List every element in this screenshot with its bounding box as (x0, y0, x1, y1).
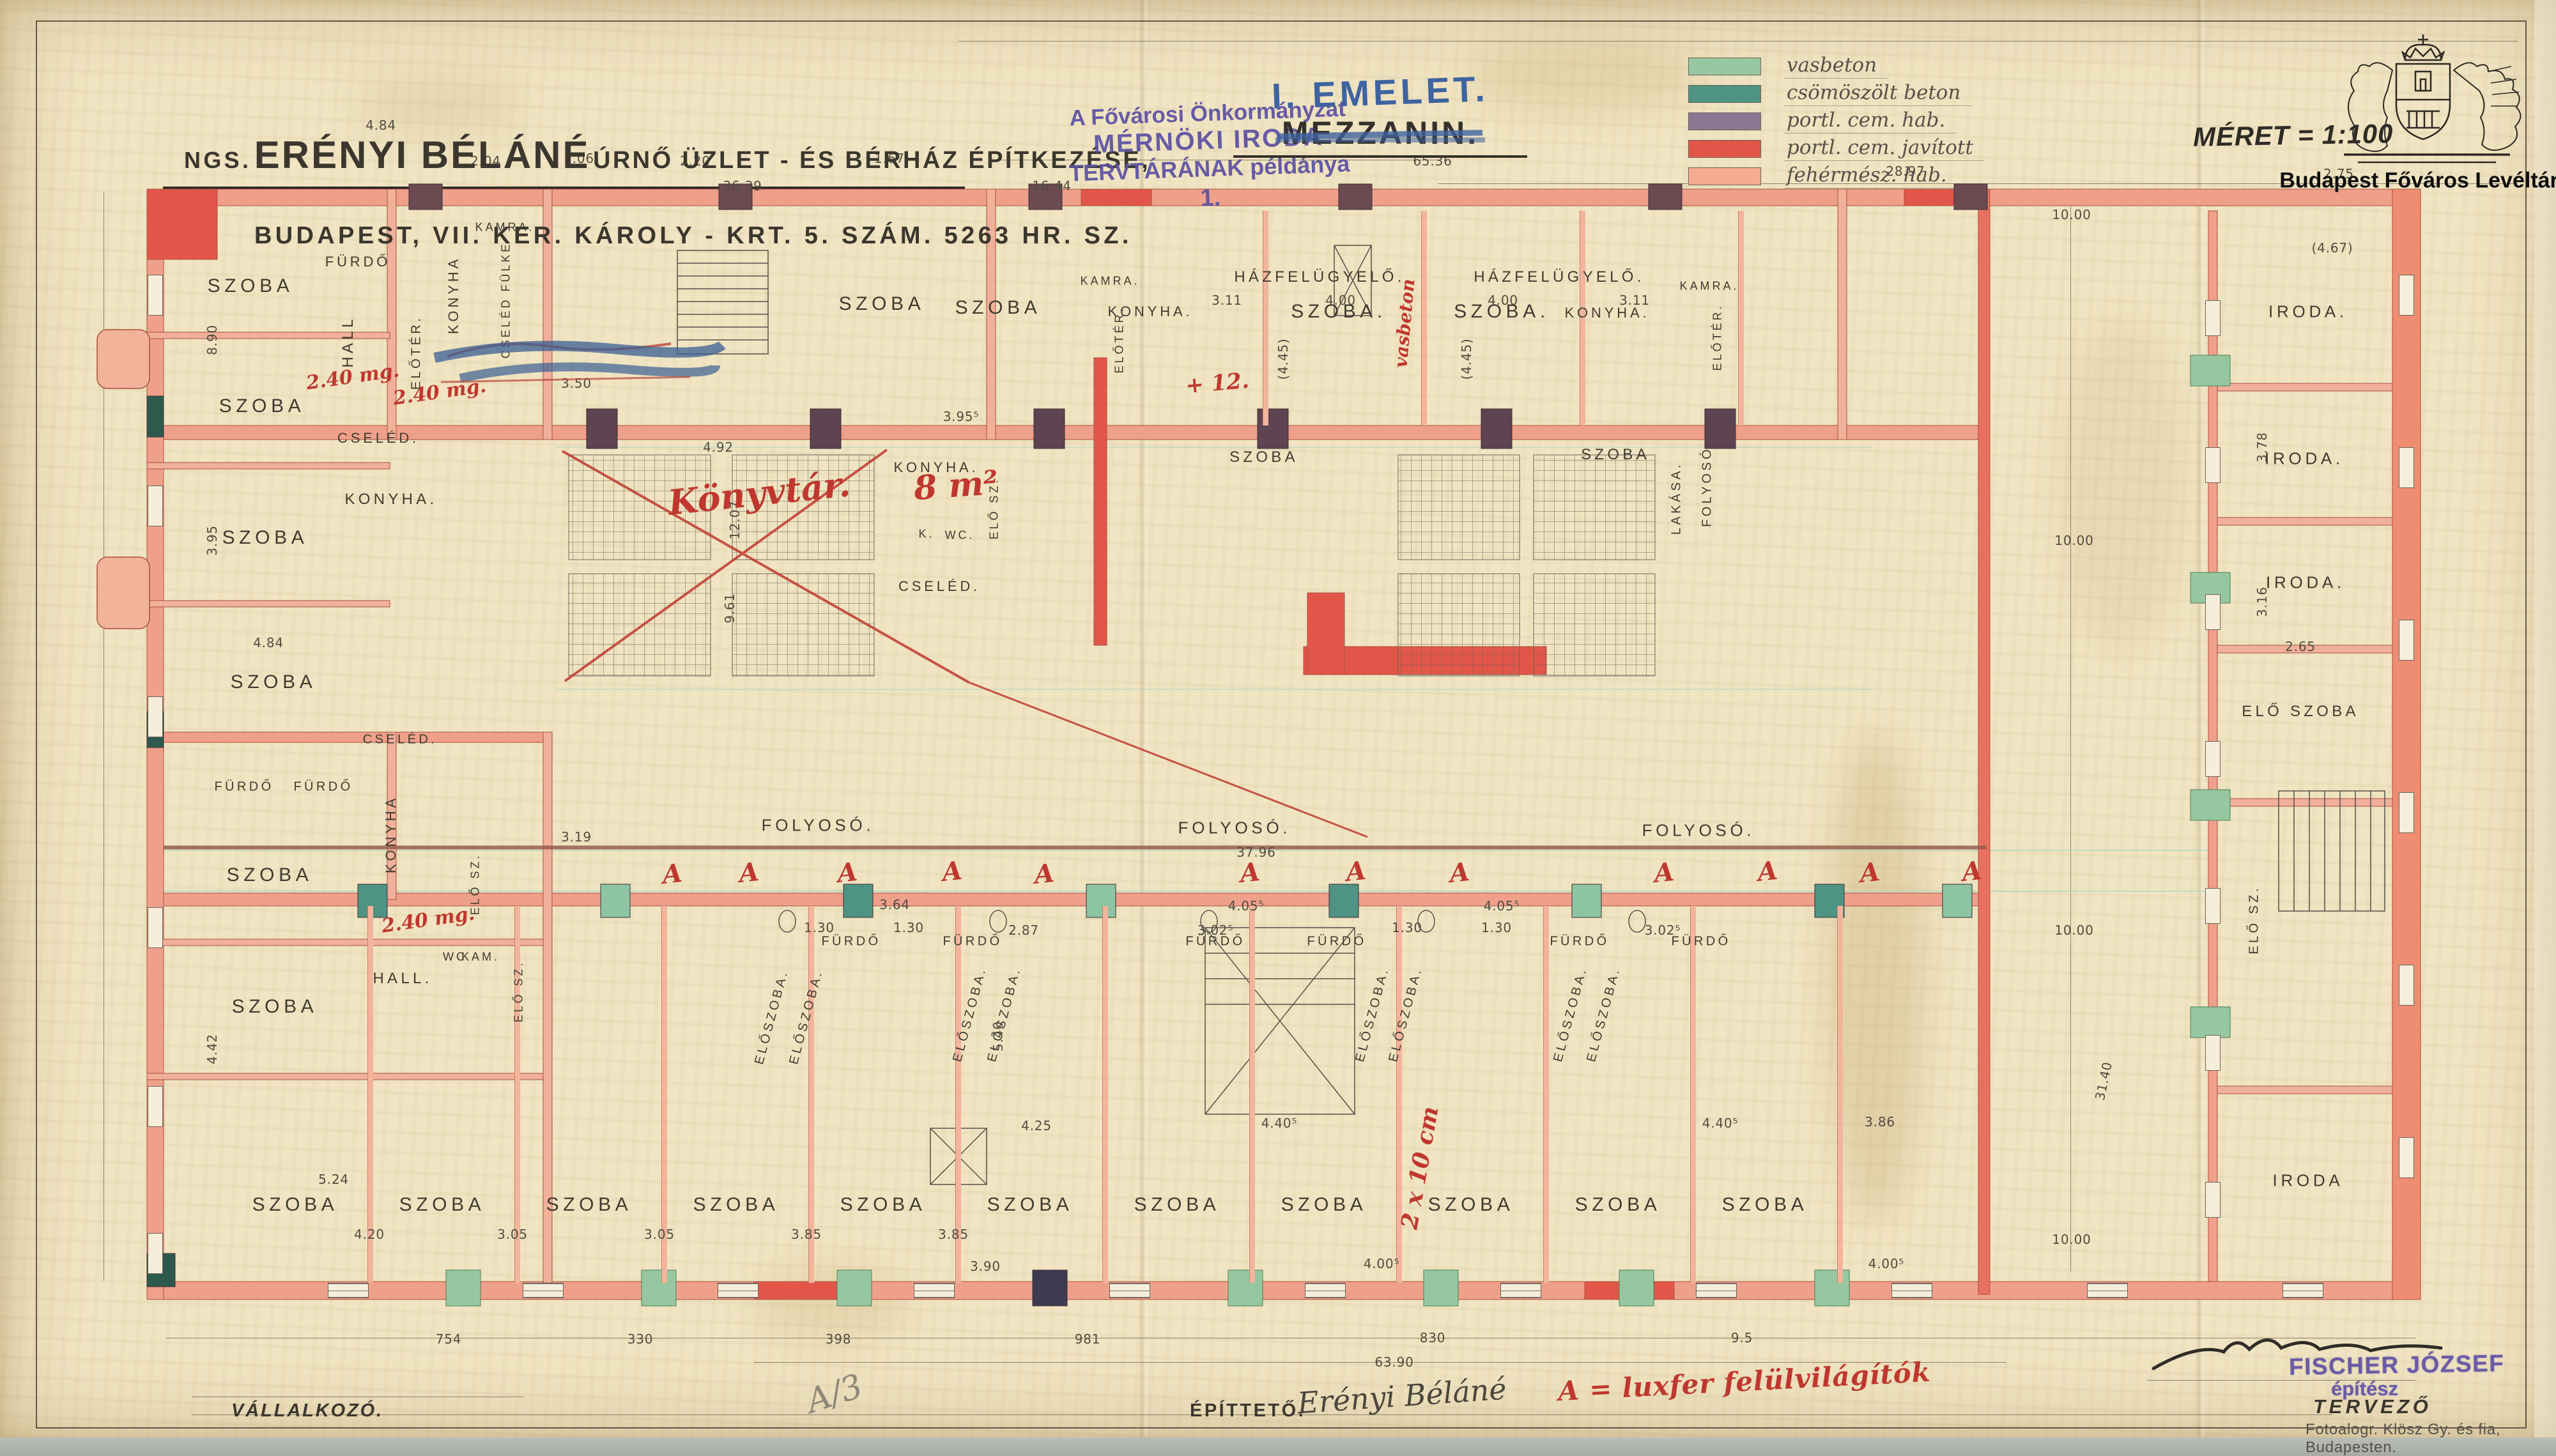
title-address: BUDAPEST, VII. KER. KÁROLY - KRT. 5. SZÁ… (254, 222, 1132, 250)
floor-crossed-label: MEZZANIN. (1282, 114, 1479, 151)
room-label: SZOBA (399, 1194, 486, 1216)
window-mark (2205, 594, 2221, 630)
dimension-label: 3.86 (1865, 1114, 1895, 1130)
crossed-out-handwriting (422, 307, 741, 409)
window-mark (2399, 792, 2414, 833)
room-divider-wall (1249, 906, 1255, 1283)
dimension-label: 3.90 (970, 1259, 1001, 1274)
skylight-a-mark: A (1652, 857, 1675, 889)
room-label: KAM. (461, 951, 500, 964)
dimension-label: 10.00 (2054, 533, 2093, 548)
dimension-label: 4.05⁵ (1484, 898, 1520, 914)
window-mark (1891, 1283, 1932, 1298)
stairs (677, 245, 2385, 1184)
window-mark (328, 1283, 369, 1298)
room-label: ELŐTÉR. (1711, 304, 1725, 371)
room-label: SZOBA (252, 1194, 339, 1216)
contractor-label: VÁLLALKOZÓ. (231, 1400, 383, 1422)
room-label: CSELÉD. (337, 430, 419, 447)
dimension-label: 3.95⁵ (943, 409, 980, 424)
window-mark (2399, 620, 2414, 661)
legend-swatch (1688, 167, 1761, 185)
window-mark (914, 1283, 955, 1298)
window-mark (1696, 1283, 1737, 1298)
room-label: SZOBA (227, 864, 313, 886)
window-mark (148, 907, 163, 948)
dimension-label: 4.40⁵ (1702, 1115, 1739, 1131)
dimension-label: 398 (826, 1331, 852, 1347)
dimension-label: 4.84 (253, 635, 284, 650)
dimension-label: 981 (1075, 1331, 1101, 1347)
materials-legend: vasbetoncsömöszölt betonportl. cem. hab.… (1688, 52, 1985, 190)
room-label: SZOBA (546, 1194, 633, 1216)
dimension-label: 10.00 (2052, 1232, 2091, 1247)
room-label: KAMRA. (1680, 280, 1739, 293)
room-divider-wall (1837, 906, 1843, 1283)
dimension-label: 8.90 (204, 325, 220, 355)
dimension-label: 3.05 (497, 1227, 528, 1242)
room-divider-wall (1263, 211, 1268, 425)
dimension-label: (4.67) (2312, 240, 2353, 256)
room-divider-wall (1690, 906, 1696, 1283)
window-mark (1109, 1283, 1150, 1298)
window-mark (2205, 1035, 2221, 1071)
dimension-label: 1.30 (1481, 920, 1512, 935)
legend-row: fehérmész. hab. (1688, 162, 1985, 190)
room-label: KAMRA. (1081, 275, 1140, 288)
room-label: SZOBA (839, 293, 925, 315)
architect-stamp-name: FISCHER JÓZSEF (2289, 1350, 2505, 1381)
floor-title-underline (1233, 155, 1527, 158)
dimension-label: 4.00⁵ (1868, 1256, 1905, 1271)
dimension-label: 830 (1420, 1330, 1446, 1345)
room-label: CSELÉD. (898, 578, 980, 595)
window-mark (148, 696, 163, 737)
archive-name-overlay: Budapest Főváros Levéltára (2279, 169, 2556, 194)
dimension-label: 2.87 (1008, 923, 1039, 938)
room-label: SZOBA (222, 527, 309, 549)
bay-windows (97, 330, 150, 629)
dimension-label: 10.00 (2054, 923, 2093, 938)
room-label: SZOBA (987, 1194, 1074, 1216)
legend-row: portl. cem. hab. (1688, 107, 1985, 135)
skylight-a-mark: A (1858, 857, 1881, 889)
legend-swatch (1688, 57, 1761, 75)
room-label: LAKÁSA. (1670, 462, 1684, 535)
window-mark (718, 1283, 758, 1298)
room-label: IRODA. (2265, 449, 2344, 469)
window-mark (2205, 888, 2221, 924)
dimension-label: 3.19 (561, 829, 592, 845)
legend-row: vasbeton (1688, 52, 1985, 80)
dimension-label: 3.11 (1212, 293, 1242, 308)
window-mark (2087, 1283, 2128, 1298)
room-label: SZOBA (208, 275, 294, 297)
room-label: FÜRDŐ (325, 254, 390, 270)
room-label: KONYHA. (1108, 303, 1193, 320)
room-label: SZOBA (1722, 1194, 1808, 1216)
window-mark (2205, 447, 2221, 483)
room-label: FÜRDŐ (214, 780, 273, 795)
window-mark (1305, 1283, 1346, 1298)
room-label: KONYHA. (345, 491, 438, 509)
dimension-label: 4.00 (1325, 293, 1356, 308)
dimension-label: 9.61 (722, 593, 737, 624)
skylight-a-mark: A (1756, 855, 1779, 887)
legend-label: csömöszölt beton (1784, 81, 1972, 106)
room-label: SZOBA (1581, 446, 1650, 464)
scale-note: MÉRET = 1:100 (2193, 118, 2394, 152)
room-label: SZOBA (219, 395, 305, 417)
legend-row: portl. cem. javított (1688, 135, 1985, 162)
room-label: HALL. (373, 970, 432, 988)
room-label: SZOBA (231, 671, 317, 693)
room-label: IRODA. (2268, 302, 2348, 322)
room-label: FÜRDŐ (821, 935, 881, 949)
room-divider-wall (1738, 211, 1744, 425)
room-label: FÜRDŐ (293, 780, 353, 795)
dimension-label: 4.42 (204, 1034, 220, 1064)
legend-swatch (1688, 112, 1761, 130)
room-label: KONYHA (383, 795, 399, 873)
dimension-label: 3.95 (204, 525, 220, 556)
print-credit: Fotoalogr. Klösz Gy. és fia, Budapesten. (2306, 1421, 2556, 1456)
room-label: SZOBA (1575, 1194, 1661, 1216)
legend-label: portl. cem. javított (1784, 136, 1985, 161)
skylight-a-mark: A (1960, 855, 1983, 887)
dimension-label: 4.25 (1021, 1118, 1052, 1133)
dimension-label: 4.00 (1488, 293, 1518, 308)
dimension-label: 4.40⁵ (1261, 1115, 1298, 1131)
dimension-label: 3.85 (791, 1227, 822, 1242)
dimension-label: 3.02⁵ (1645, 923, 1681, 938)
room-divider-wall (1102, 906, 1108, 1283)
client-label: ÉPÍTTETŐ. (1190, 1400, 1305, 1422)
dimension-label: 36.39 (723, 178, 762, 194)
floor-current-label: I. EMELET. (1271, 68, 1489, 117)
room-label: FÜRDŐ (1307, 935, 1366, 949)
window-mark (2283, 1283, 2323, 1298)
budapest-coat-of-arms (2321, 29, 2532, 176)
dimension-label: 4.00⁵ (1364, 1256, 1400, 1271)
room-label: FOLYOSÓ. (1642, 821, 1755, 841)
window-mark (2399, 275, 2414, 316)
room-label: SZOBA (1281, 1194, 1367, 1216)
room-divider-wall (1421, 211, 1427, 425)
skylight-a-mark: A (737, 857, 760, 889)
room-label: SZOBA (1134, 1194, 1220, 1216)
skylight-a-mark: A (1344, 855, 1367, 887)
dimension-label: 1.30 (1392, 920, 1422, 935)
dimension-label: 3.16 (2254, 586, 2270, 617)
legend-row: csömöszölt beton (1688, 80, 1985, 107)
dimension-label: 3.85 (938, 1227, 969, 1242)
dimension-label: 330 (627, 1331, 654, 1347)
skylight-a-mark: A (661, 858, 684, 890)
dimension-label: 4.84 (366, 118, 396, 133)
skylight-a-mark: A (941, 855, 964, 887)
dimension-label: 3.64 (879, 897, 910, 912)
room-label: ELŐ SZOBA (2242, 703, 2359, 721)
skylight-a-mark: A (1448, 857, 1471, 889)
window-mark (148, 275, 163, 316)
dimension-label: 1.30 (893, 920, 924, 935)
dimension-label: 5.24 (318, 1172, 349, 1187)
room-label: SZOBA (1428, 1194, 1514, 1216)
floor-title: I. EMELET. MEZZANIN. (1233, 72, 1527, 158)
skylight-a-mark: A (836, 857, 859, 889)
legend-swatch (1688, 140, 1761, 158)
scanned-floor-plan-sheet: SZOBASZOBASZOBASZOBAFÜRDŐHALLELŐTÉR.KONY… (0, 0, 2556, 1456)
room-label: FÜRDŐ (1550, 935, 1609, 949)
red-annotation: 8 m² (912, 463, 999, 508)
room-label: FOLYOSÓ (1700, 447, 1715, 527)
designer-label: TERVEZŐ (2313, 1395, 2431, 1418)
dimension-label: 3.78 (2254, 432, 2270, 463)
window-mark (2205, 1182, 2221, 1218)
legend-swatch (1688, 85, 1761, 103)
skylight-a-mark: A (1238, 857, 1261, 889)
room-label: FOLYOSÓ. (762, 816, 875, 836)
dimension-label: 63.90 (1374, 1354, 1413, 1370)
room-label: CSELÉD. (363, 733, 437, 747)
dimension-label: 4.20 (354, 1227, 385, 1242)
room-label: IRODA. (2266, 573, 2345, 593)
legend-label: vasbeton (1784, 54, 1888, 79)
legend-label: fehérmész. hab. (1784, 164, 1959, 188)
window-mark (2205, 300, 2221, 336)
room-divider-wall (1543, 906, 1549, 1283)
dimension-label: (4.45) (1459, 339, 1474, 380)
room-label: SZOBA (955, 297, 1042, 319)
window-mark (1500, 1283, 1541, 1298)
window-mark (2399, 447, 2414, 488)
skylight-a-mark: A (1033, 858, 1056, 890)
legend-label: portl. cem. hab. (1784, 109, 1957, 134)
window-mark (148, 486, 163, 526)
dimension-label: 4.05⁵ (1228, 898, 1265, 914)
room-label: SZOBA (840, 1194, 927, 1216)
room-label: IRODA (2273, 1171, 2344, 1191)
dimension-label: 9.5 (1731, 1330, 1753, 1345)
window-mark (2399, 965, 2414, 1006)
dimension-label: 1.30 (804, 920, 835, 935)
room-label: HÁZFELÜGYELŐ. (1234, 268, 1405, 286)
room-label: SZOBA (1229, 448, 1298, 466)
dimension-label: 4.92 (703, 440, 734, 455)
room-label: HÁZFELÜGYELŐ. (1474, 268, 1644, 286)
room-label: K. (919, 528, 935, 541)
window-mark (523, 1283, 564, 1298)
room-label: WC. (945, 529, 975, 542)
dimension-label: 5.40 (990, 1021, 1006, 1052)
room-label: SZOBA (693, 1194, 780, 1216)
dimension-label: 3.02⁵ (1197, 923, 1234, 938)
room-label: ELŐ SZ. (512, 961, 526, 1023)
dimension-label: 754 (436, 1331, 462, 1347)
window-mark (2205, 741, 2221, 777)
window-mark (2399, 1137, 2414, 1178)
window-mark (148, 1233, 163, 1274)
window-mark (148, 1086, 163, 1127)
dimension-label: (4.45) (1275, 339, 1291, 380)
dimension-label: 3.05 (644, 1227, 675, 1242)
dimension-label: 2.65 (2285, 639, 2316, 654)
room-label: FOLYOSÓ. (1178, 818, 1291, 838)
dimension-label: 3.11 (1619, 293, 1650, 308)
title-owner: ERÉNYI BÉLÁNÉ (254, 134, 590, 176)
room-label: FÜRDŐ (943, 935, 1002, 949)
room-label: ELŐ SZ. (2247, 885, 2262, 954)
dimension-label: 10.00 (2052, 207, 2091, 222)
title-prefix: NGS. (184, 147, 251, 173)
room-label: SZOBA (232, 996, 318, 1018)
room-label: HALL (339, 316, 357, 367)
